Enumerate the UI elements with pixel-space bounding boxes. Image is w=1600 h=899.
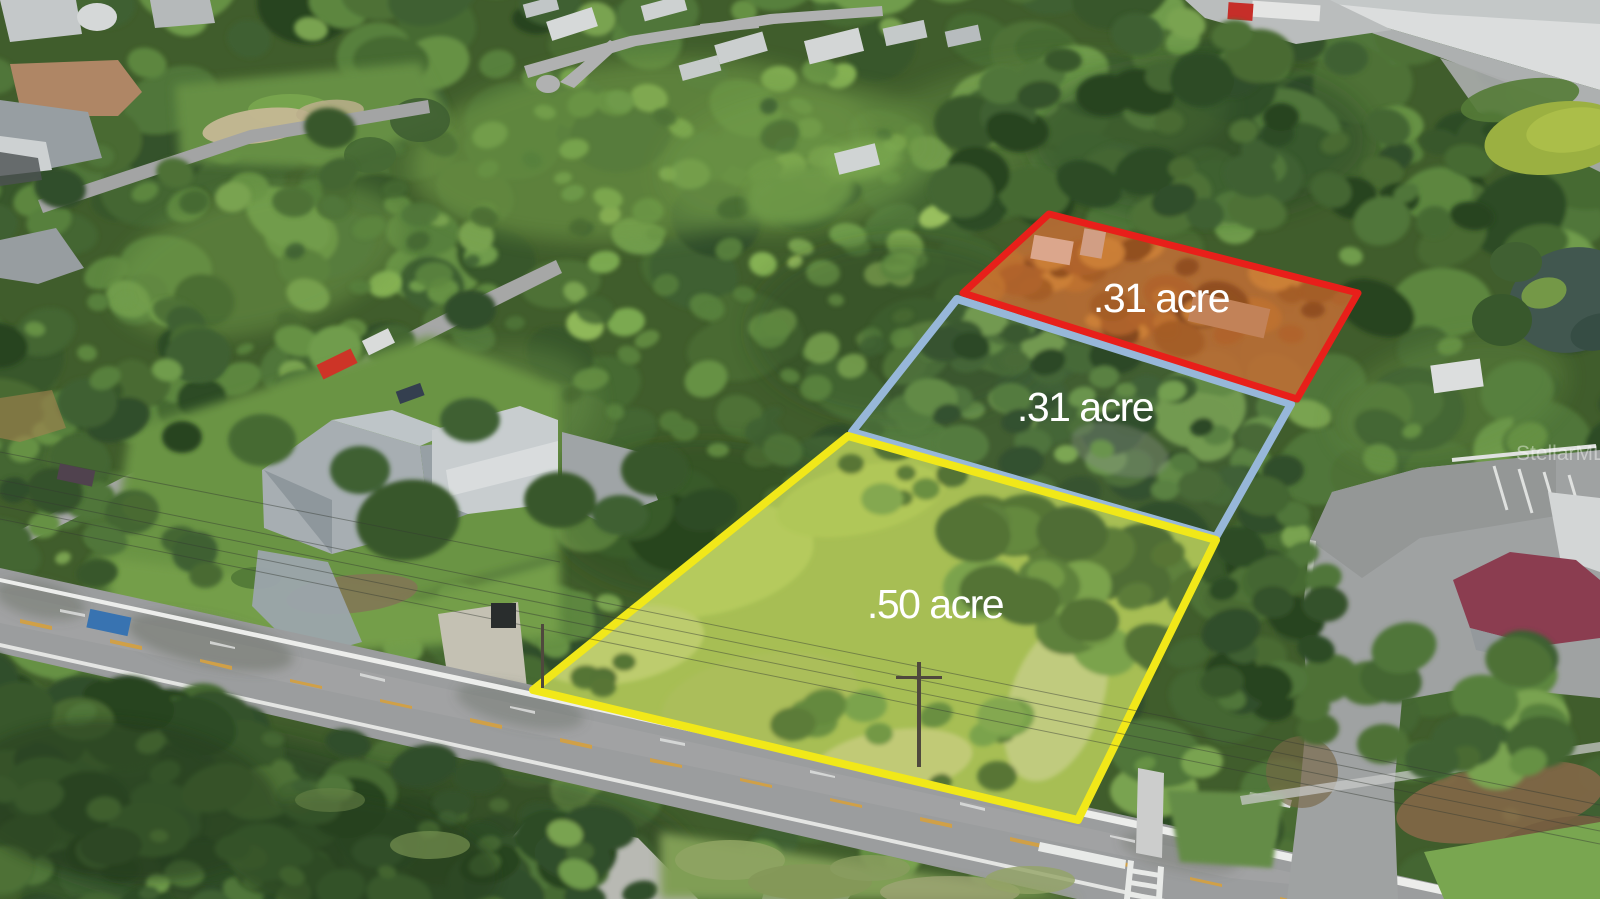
svg-text:StellarMLS: StellarMLS — [1516, 442, 1600, 465]
svg-text:.31 acre: .31 acre — [1017, 384, 1153, 430]
svg-text:.50 acre: .50 acre — [867, 581, 1003, 627]
svg-text:.31 acre: .31 acre — [1093, 275, 1229, 321]
